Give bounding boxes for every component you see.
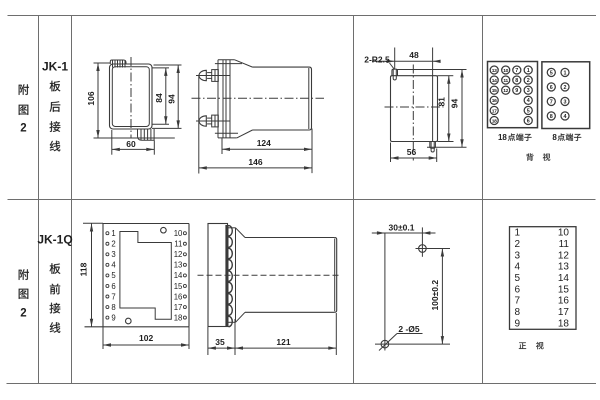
svg-text:2: 2 bbox=[20, 308, 26, 320]
svg-text:11: 11 bbox=[559, 239, 570, 250]
svg-text:12: 12 bbox=[503, 88, 508, 94]
svg-text:8: 8 bbox=[515, 78, 518, 84]
svg-text:94: 94 bbox=[449, 99, 459, 109]
svg-text:4: 4 bbox=[515, 262, 521, 273]
svg-text:106: 106 bbox=[86, 91, 96, 105]
svg-text:118: 118 bbox=[79, 262, 89, 276]
svg-text:11: 11 bbox=[503, 78, 508, 84]
svg-text:6: 6 bbox=[515, 284, 521, 295]
svg-text:15: 15 bbox=[174, 282, 183, 291]
svg-text:11: 11 bbox=[174, 240, 182, 249]
svg-text:8: 8 bbox=[552, 133, 557, 142]
svg-text:94: 94 bbox=[167, 94, 177, 104]
svg-text:30±0.1: 30±0.1 bbox=[389, 223, 415, 233]
svg-text:17: 17 bbox=[492, 108, 497, 114]
svg-text:3: 3 bbox=[564, 99, 567, 105]
svg-text:18: 18 bbox=[558, 318, 570, 329]
svg-text:10: 10 bbox=[503, 68, 508, 74]
svg-text:7: 7 bbox=[515, 296, 521, 307]
svg-text:2: 2 bbox=[20, 123, 26, 135]
svg-text:12: 12 bbox=[174, 250, 183, 259]
svg-text:56: 56 bbox=[407, 147, 417, 157]
svg-text:17: 17 bbox=[174, 303, 183, 312]
svg-text:48: 48 bbox=[409, 50, 419, 60]
svg-text:8: 8 bbox=[515, 307, 521, 318]
svg-text:14: 14 bbox=[558, 273, 570, 284]
svg-text:13: 13 bbox=[174, 261, 183, 270]
svg-text:2-R2.5: 2-R2.5 bbox=[364, 54, 390, 64]
svg-text:10: 10 bbox=[174, 229, 183, 238]
svg-text:18: 18 bbox=[498, 133, 507, 142]
svg-text:100±0.2: 100±0.2 bbox=[430, 280, 440, 311]
svg-text:3: 3 bbox=[515, 250, 521, 261]
svg-text:121: 121 bbox=[276, 337, 290, 347]
svg-text:84: 84 bbox=[154, 93, 164, 103]
svg-text:35: 35 bbox=[215, 337, 225, 347]
svg-text:8: 8 bbox=[111, 303, 115, 312]
svg-text:2: 2 bbox=[515, 239, 521, 250]
svg-text:7: 7 bbox=[550, 99, 553, 105]
svg-text:81: 81 bbox=[437, 97, 447, 107]
svg-text:8: 8 bbox=[550, 114, 553, 120]
svg-text:5: 5 bbox=[527, 108, 530, 114]
svg-text:60: 60 bbox=[126, 139, 136, 149]
svg-text:10: 10 bbox=[558, 228, 570, 239]
svg-text:16: 16 bbox=[558, 296, 570, 307]
svg-text:5: 5 bbox=[111, 271, 116, 280]
svg-text:7: 7 bbox=[515, 68, 518, 74]
svg-text:4: 4 bbox=[527, 98, 530, 104]
svg-text:15: 15 bbox=[558, 284, 570, 295]
svg-text:14: 14 bbox=[492, 78, 497, 84]
svg-text:18: 18 bbox=[492, 118, 497, 124]
svg-text:2: 2 bbox=[564, 85, 567, 91]
svg-text:13: 13 bbox=[492, 68, 497, 74]
svg-text:14: 14 bbox=[174, 271, 183, 280]
svg-text:5: 5 bbox=[515, 273, 521, 284]
svg-text:3: 3 bbox=[111, 250, 115, 259]
svg-text:7: 7 bbox=[111, 292, 115, 301]
svg-text:1: 1 bbox=[111, 229, 115, 238]
svg-text:4: 4 bbox=[111, 261, 116, 270]
svg-text:1: 1 bbox=[564, 70, 567, 76]
svg-text:17: 17 bbox=[558, 307, 570, 318]
svg-text:6: 6 bbox=[527, 118, 530, 124]
svg-text:JK-1: JK-1 bbox=[42, 60, 68, 74]
svg-text:6: 6 bbox=[550, 85, 553, 91]
svg-text:124: 124 bbox=[257, 138, 271, 148]
svg-text:102: 102 bbox=[139, 333, 153, 343]
svg-text:2: 2 bbox=[111, 240, 115, 249]
svg-text:4: 4 bbox=[564, 114, 567, 120]
svg-text:1: 1 bbox=[527, 68, 530, 74]
svg-text:9: 9 bbox=[515, 318, 521, 329]
svg-text:9: 9 bbox=[111, 313, 115, 322]
svg-text:1: 1 bbox=[515, 228, 521, 239]
svg-text:16: 16 bbox=[492, 98, 497, 104]
svg-text:12: 12 bbox=[558, 250, 570, 261]
svg-text:2: 2 bbox=[527, 78, 530, 84]
svg-text:JK-1Q: JK-1Q bbox=[37, 233, 72, 247]
svg-text:3: 3 bbox=[527, 88, 530, 94]
svg-text:2 -Ø5: 2 -Ø5 bbox=[398, 324, 420, 334]
svg-text:18: 18 bbox=[174, 313, 183, 322]
svg-text:15: 15 bbox=[492, 88, 497, 94]
svg-text:146: 146 bbox=[248, 157, 262, 167]
svg-text:6: 6 bbox=[111, 282, 115, 291]
svg-text:5: 5 bbox=[550, 70, 553, 76]
svg-text:16: 16 bbox=[174, 292, 183, 301]
svg-text:9: 9 bbox=[515, 88, 518, 94]
svg-text:13: 13 bbox=[558, 262, 570, 273]
